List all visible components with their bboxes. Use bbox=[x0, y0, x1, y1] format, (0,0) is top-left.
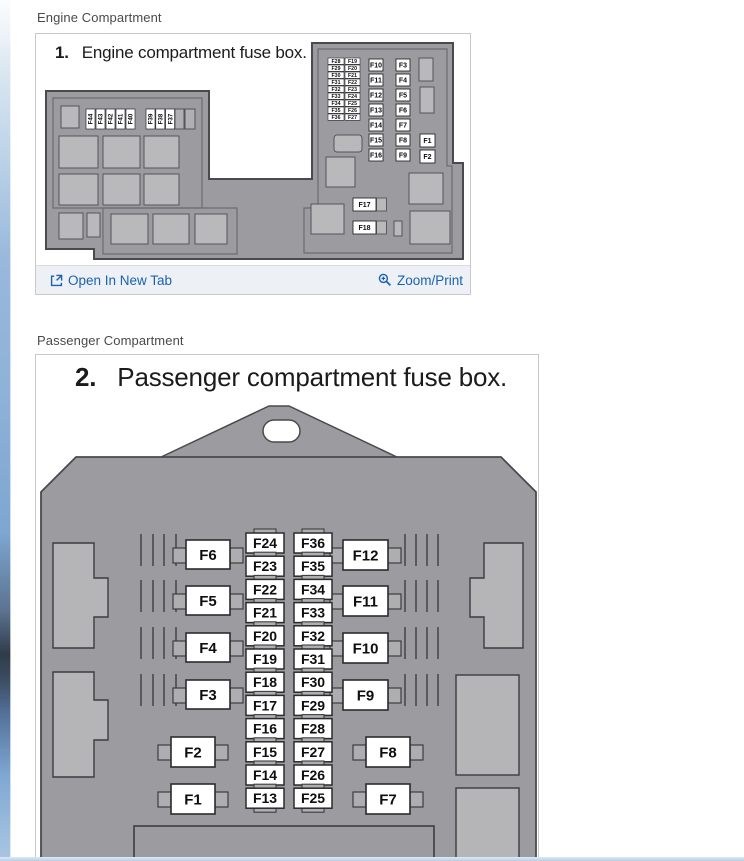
fuse-f9: F9 bbox=[343, 680, 388, 710]
svg-text:F28: F28 bbox=[301, 721, 325, 737]
svg-text:F9: F9 bbox=[399, 153, 407, 160]
fuse-f15: F15 bbox=[369, 134, 383, 146]
svg-text:F16: F16 bbox=[253, 721, 277, 737]
fuse-f27: F27 bbox=[294, 742, 332, 762]
svg-text:F3: F3 bbox=[199, 687, 217, 704]
fuse-f21: F21 bbox=[246, 603, 284, 623]
fuse-f41: F41 bbox=[116, 109, 125, 129]
fuse-f36: F36 bbox=[294, 533, 332, 553]
fuse-f5: F5 bbox=[186, 586, 230, 615]
svg-text:F13: F13 bbox=[253, 790, 277, 806]
fuse-f11: F11 bbox=[343, 586, 388, 616]
fuse-f28: F28 bbox=[294, 719, 332, 739]
svg-text:F15: F15 bbox=[370, 138, 382, 145]
fuse-f38: F38 bbox=[156, 109, 165, 129]
fuse-f33: F33 bbox=[294, 603, 332, 623]
passenger-box-body bbox=[41, 406, 536, 861]
fuse-f22: F22 bbox=[246, 579, 284, 599]
svg-text:F19: F19 bbox=[348, 59, 357, 65]
fuse-f1: F1 bbox=[420, 134, 435, 147]
fuse-f31: F31 bbox=[294, 649, 332, 669]
svg-text:F35: F35 bbox=[301, 558, 325, 574]
svg-text:F2: F2 bbox=[184, 744, 202, 761]
svg-text:F21: F21 bbox=[348, 73, 357, 79]
svg-text:F18: F18 bbox=[253, 674, 277, 690]
svg-text:F24: F24 bbox=[348, 94, 357, 100]
fuse-f44: F44 bbox=[86, 109, 95, 129]
svg-text:F3: F3 bbox=[399, 63, 407, 70]
svg-text:F36: F36 bbox=[332, 115, 341, 121]
fuse-f28: F28 bbox=[328, 58, 344, 65]
open-in-new-tab-link[interactable]: Open In New Tab bbox=[50, 273, 172, 288]
fuse-f17: F17 bbox=[246, 695, 284, 715]
svg-text:F33: F33 bbox=[332, 94, 341, 100]
passenger-figure-number: 2. bbox=[75, 362, 96, 393]
fuse-f43: F43 bbox=[96, 109, 105, 129]
svg-text:F26: F26 bbox=[301, 767, 325, 783]
svg-text:F1: F1 bbox=[423, 138, 431, 145]
passenger-panel: 2. Passenger compartment fuse box. F6F5F… bbox=[35, 354, 539, 861]
svg-text:F20: F20 bbox=[348, 66, 357, 72]
svg-text:F6: F6 bbox=[199, 547, 217, 564]
svg-text:F17: F17 bbox=[253, 697, 277, 713]
fuse-f25: F25 bbox=[294, 788, 332, 808]
fuse-f23: F23 bbox=[246, 556, 284, 576]
passenger-figure-caption: Passenger compartment fuse box. bbox=[117, 362, 507, 393]
fuse-f7: F7 bbox=[366, 784, 410, 814]
svg-text:F21: F21 bbox=[253, 605, 277, 621]
svg-text:F2: F2 bbox=[423, 154, 431, 161]
svg-text:F12: F12 bbox=[353, 547, 379, 564]
svg-text:F32: F32 bbox=[332, 87, 341, 93]
fuse-f39: F39 bbox=[146, 109, 155, 129]
engine-fuse-box-diagram: F44F43F42F41F40F39F38F37F28F19F29F20F30F… bbox=[41, 37, 465, 263]
fuse-f6: F6 bbox=[396, 104, 410, 116]
svg-text:F1: F1 bbox=[184, 791, 202, 808]
fuse-f10: F10 bbox=[343, 633, 388, 663]
fuse-f13: F13 bbox=[369, 104, 383, 116]
fuse-f42: F42 bbox=[106, 109, 115, 129]
fuse-f35: F35 bbox=[294, 556, 332, 576]
fuse-f19: F19 bbox=[246, 649, 284, 669]
fuse-f6: F6 bbox=[186, 540, 230, 569]
passenger-section-label: Passenger Compartment bbox=[37, 333, 184, 348]
svg-text:F19: F19 bbox=[253, 651, 277, 667]
fuse-f16: F16 bbox=[246, 719, 284, 739]
svg-text:F13: F13 bbox=[370, 108, 382, 115]
svg-text:F39: F39 bbox=[148, 113, 155, 124]
fuse-f24: F24 bbox=[246, 533, 284, 553]
fuse-f40: F40 bbox=[126, 109, 135, 129]
fuse-f14: F14 bbox=[246, 765, 284, 785]
svg-text:F17: F17 bbox=[358, 202, 370, 209]
fuse-f18: F18 bbox=[246, 672, 284, 692]
fuse-f25: F25 bbox=[345, 100, 360, 107]
fuse-f9: F9 bbox=[396, 149, 410, 161]
svg-text:F25: F25 bbox=[301, 790, 325, 806]
fuse-f26: F26 bbox=[294, 765, 332, 785]
fuse-f12: F12 bbox=[369, 89, 383, 101]
svg-text:F15: F15 bbox=[253, 744, 277, 760]
svg-text:F26: F26 bbox=[348, 108, 357, 114]
fuse-f32: F32 bbox=[328, 86, 344, 93]
open-in-new-tab-label: Open In New Tab bbox=[68, 273, 172, 288]
fuse-f13: F13 bbox=[246, 788, 284, 808]
fuse-f3: F3 bbox=[396, 59, 410, 71]
svg-text:F6: F6 bbox=[399, 108, 407, 115]
svg-text:F40: F40 bbox=[128, 113, 135, 124]
fuse-f27: F27 bbox=[345, 114, 360, 121]
engine-panel: 1. Engine compartment fuse box. bbox=[35, 33, 471, 295]
fuse-f20: F20 bbox=[345, 65, 360, 72]
fuse-f18: F18 bbox=[353, 221, 376, 234]
svg-text:F44: F44 bbox=[88, 113, 95, 124]
svg-text:F16: F16 bbox=[370, 153, 382, 160]
fuse-f23: F23 bbox=[345, 86, 360, 93]
fuse-f30: F30 bbox=[294, 672, 332, 692]
fuse-f3: F3 bbox=[186, 680, 230, 709]
svg-text:F38: F38 bbox=[158, 113, 165, 124]
svg-text:F36: F36 bbox=[301, 535, 325, 551]
svg-text:F7: F7 bbox=[379, 791, 397, 808]
fuse-f29: F29 bbox=[328, 65, 344, 72]
svg-text:F29: F29 bbox=[301, 697, 325, 713]
fuse-f8: F8 bbox=[396, 134, 410, 146]
fuse-f19: F19 bbox=[345, 58, 360, 65]
svg-text:F31: F31 bbox=[301, 651, 325, 667]
svg-text:F24: F24 bbox=[253, 535, 277, 551]
fuse-f11: F11 bbox=[369, 74, 383, 86]
fuse-f22: F22 bbox=[345, 79, 360, 86]
fuse-f8: F8 bbox=[366, 737, 410, 767]
fuse-f4: F4 bbox=[396, 74, 410, 86]
svg-text:F35: F35 bbox=[332, 108, 341, 114]
svg-text:F32: F32 bbox=[301, 628, 325, 644]
zoom-print-label: Zoom/Print bbox=[397, 273, 463, 288]
svg-text:F11: F11 bbox=[370, 78, 382, 85]
svg-text:F18: F18 bbox=[358, 225, 370, 232]
fuse-f26: F26 bbox=[345, 107, 360, 114]
svg-text:F12: F12 bbox=[370, 93, 382, 100]
fuse-f24: F24 bbox=[345, 93, 360, 100]
fuse-f2: F2 bbox=[420, 150, 435, 163]
svg-text:F34: F34 bbox=[332, 101, 341, 107]
svg-text:F5: F5 bbox=[399, 93, 407, 100]
svg-text:F8: F8 bbox=[399, 138, 407, 145]
fuse-f5: F5 bbox=[396, 89, 410, 101]
engine-panel-footer: Open In New Tab Zoom/Print bbox=[36, 265, 470, 294]
fuse-f31: F31 bbox=[328, 79, 344, 86]
svg-text:F7: F7 bbox=[399, 123, 407, 130]
svg-text:F41: F41 bbox=[118, 113, 125, 124]
fuse-f2: F2 bbox=[171, 737, 215, 767]
fuse-f35: F35 bbox=[328, 107, 344, 114]
svg-text:F27: F27 bbox=[348, 115, 357, 121]
bottom-edge-strip bbox=[0, 857, 744, 861]
zoom-print-icon bbox=[378, 273, 392, 287]
engine-section-label: Engine Compartment bbox=[37, 10, 162, 25]
svg-text:F34: F34 bbox=[301, 581, 325, 597]
svg-text:F22: F22 bbox=[253, 581, 277, 597]
open-in-new-tab-icon bbox=[50, 274, 63, 287]
svg-text:F27: F27 bbox=[301, 744, 325, 760]
svg-text:F28: F28 bbox=[332, 59, 341, 65]
svg-text:F4: F4 bbox=[199, 640, 217, 657]
svg-text:F25: F25 bbox=[348, 101, 357, 107]
fuse-f34: F34 bbox=[328, 100, 344, 107]
svg-text:F30: F30 bbox=[301, 674, 325, 690]
svg-text:F10: F10 bbox=[353, 640, 379, 657]
svg-text:F14: F14 bbox=[253, 767, 277, 783]
fuse-f32: F32 bbox=[294, 626, 332, 646]
svg-text:F8: F8 bbox=[379, 744, 397, 761]
fuse-f34: F34 bbox=[294, 579, 332, 599]
svg-text:F31: F31 bbox=[332, 80, 341, 86]
svg-text:F9: F9 bbox=[357, 687, 375, 704]
svg-text:F37: F37 bbox=[167, 113, 174, 124]
fuse-f15: F15 bbox=[246, 742, 284, 762]
fuse-f16: F16 bbox=[369, 149, 383, 161]
fuse-f29: F29 bbox=[294, 695, 332, 715]
passenger-figure-title: 2. Passenger compartment fuse box. bbox=[75, 362, 507, 393]
svg-text:F5: F5 bbox=[199, 593, 217, 610]
svg-text:F20: F20 bbox=[253, 628, 277, 644]
zoom-print-link[interactable]: Zoom/Print bbox=[378, 273, 463, 288]
fuse-f14: F14 bbox=[369, 119, 383, 131]
background-photo-strip bbox=[0, 0, 11, 861]
fuse-f36: F36 bbox=[328, 114, 344, 121]
svg-text:F4: F4 bbox=[399, 78, 407, 85]
fuse-f17: F17 bbox=[353, 198, 376, 211]
fuse-f33: F33 bbox=[328, 93, 344, 100]
svg-text:F33: F33 bbox=[301, 605, 325, 621]
fuse-f30: F30 bbox=[328, 72, 344, 79]
fuse-f10: F10 bbox=[369, 59, 383, 71]
fuse-f4: F4 bbox=[186, 633, 230, 662]
svg-text:F43: F43 bbox=[98, 113, 105, 124]
page: Engine Compartment 1. Engine compartment… bbox=[0, 0, 744, 861]
fuse-f37: F37 bbox=[166, 109, 175, 129]
passenger-fuse-box-diagram: F6F5F4F3F12F11F10F9F2F1F8F7F24F23F22F21F… bbox=[36, 395, 541, 861]
svg-text:F30: F30 bbox=[332, 73, 341, 79]
svg-text:F10: F10 bbox=[370, 63, 382, 70]
svg-text:F23: F23 bbox=[348, 87, 357, 93]
fuse-f12: F12 bbox=[343, 540, 388, 570]
fuse-f7: F7 bbox=[396, 119, 410, 131]
svg-text:F11: F11 bbox=[353, 593, 378, 610]
fuse-f21: F21 bbox=[345, 72, 360, 79]
svg-text:F29: F29 bbox=[332, 66, 341, 72]
fuse-f20: F20 bbox=[246, 626, 284, 646]
svg-text:F23: F23 bbox=[253, 558, 277, 574]
svg-text:F14: F14 bbox=[370, 123, 382, 130]
svg-text:F42: F42 bbox=[108, 113, 115, 124]
svg-text:F22: F22 bbox=[348, 80, 357, 86]
fuse-f1: F1 bbox=[171, 784, 215, 814]
